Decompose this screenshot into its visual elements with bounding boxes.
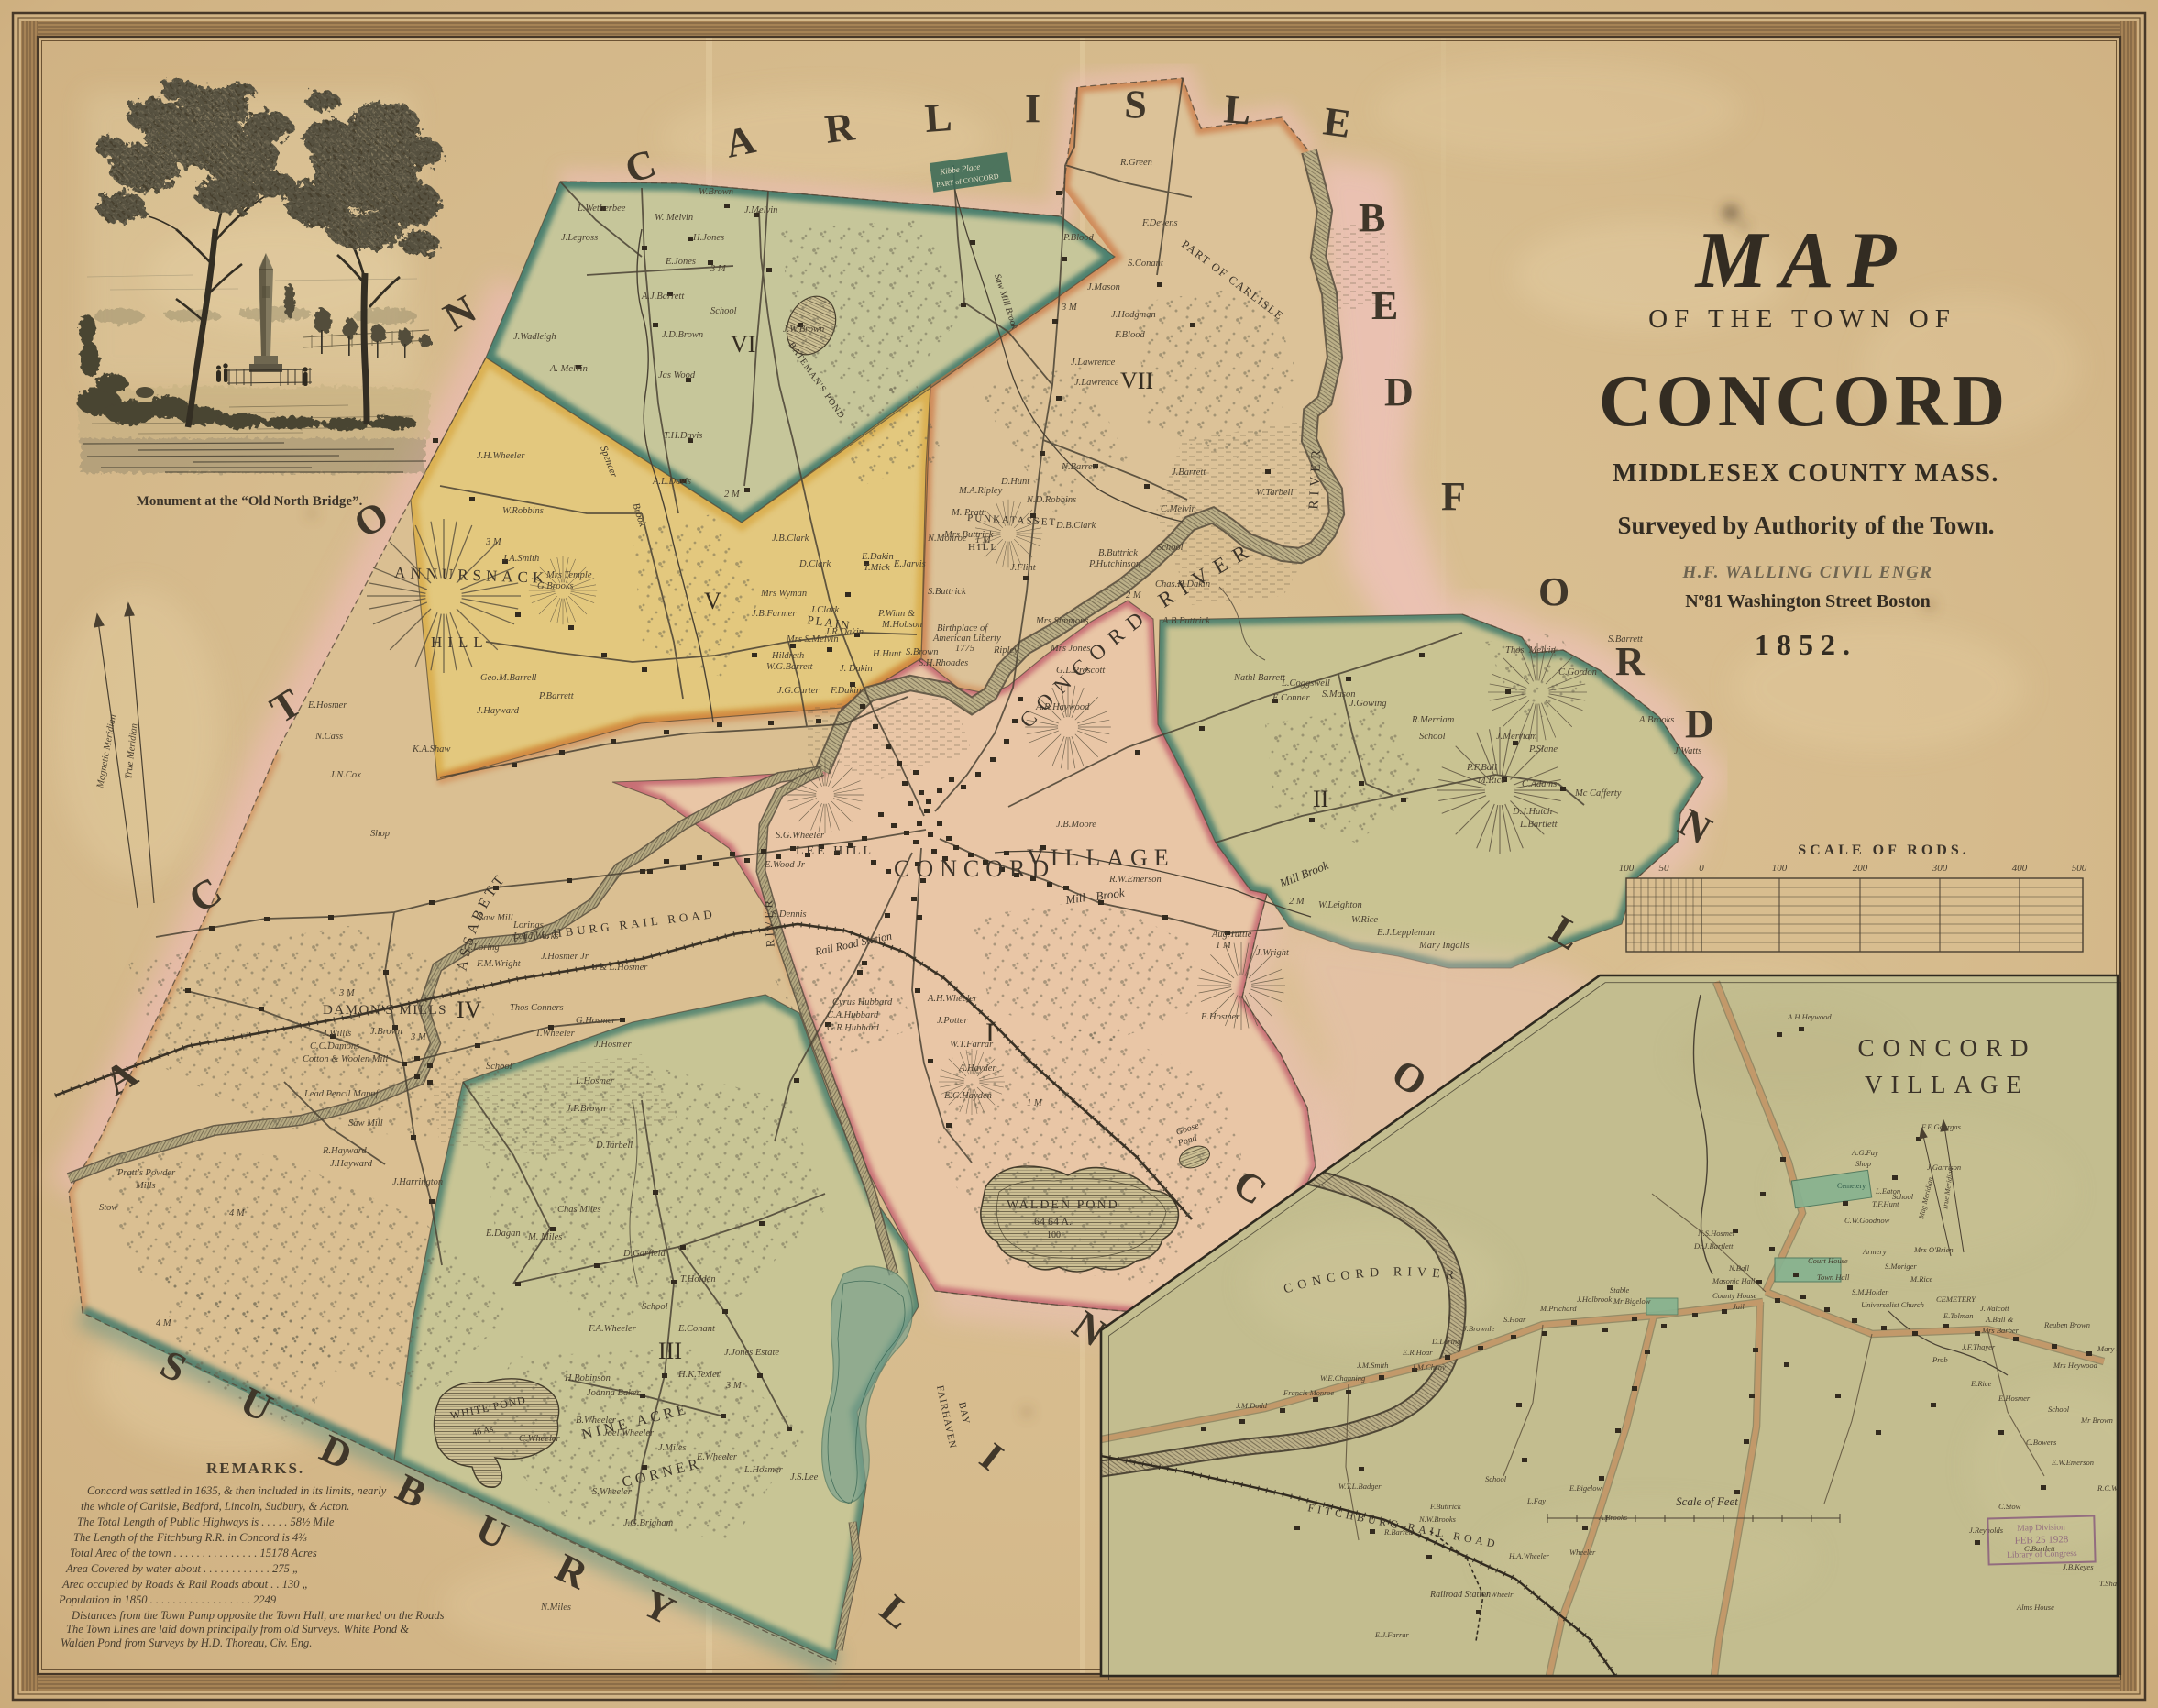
svg-text:W.T.Farrar: W.T.Farrar [950, 1040, 994, 1050]
svg-text:Mary Ingalls: Mary Ingalls [1418, 941, 1470, 951]
svg-text:S.G.Wheeler: S.G.Wheeler [776, 831, 825, 841]
svg-text:J.Barrett: J.Barrett [1172, 468, 1206, 478]
svg-text:L.Hosmer: L.Hosmer [743, 1465, 784, 1475]
svg-text:F.Buttrick: F.Buttrick [1429, 1502, 1461, 1511]
svg-text:S.Wheeler: S.Wheeler [592, 1487, 633, 1497]
svg-text:HILL: HILL [431, 634, 489, 651]
svg-text:J.Gowing: J.Gowing [1349, 699, 1387, 709]
svg-text:Mr Bigelow: Mr Bigelow [1613, 1296, 1651, 1306]
svg-text:A.Hayden: A.Hayden [958, 1063, 997, 1074]
svg-text:E.W.Emerson: E.W.Emerson [2051, 1458, 2094, 1467]
svg-text:C.Adams: C.Adams [1522, 779, 1557, 789]
svg-text:Francis Monroe: Francis Monroe [1283, 1388, 1334, 1397]
svg-text:J.Harrington: J.Harrington [392, 1177, 443, 1187]
svg-text:Concord was settled in 1635, &: Concord was settled in 1635, & then incl… [87, 1484, 387, 1497]
svg-text:G.L.Prescott: G.L.Prescott [1056, 666, 1106, 676]
svg-text:A.Brooks: A.Brooks [1598, 1513, 1628, 1522]
svg-text:Total Area of the town . . . .: Total Area of the town . . . . . . . . .… [70, 1547, 317, 1559]
svg-text:W.Leighton: W.Leighton [1318, 900, 1362, 910]
svg-text:Cemetery: Cemetery [1837, 1182, 1866, 1190]
svg-text:Joel Wheeler: Joel Wheeler [603, 1428, 655, 1438]
svg-text:L: L [923, 94, 953, 141]
svg-text:LEE HILL: LEE HILL [796, 844, 874, 858]
svg-text:C.W.Goodnow: C.W.Goodnow [1844, 1216, 1890, 1225]
svg-text:S.Brown: S.Brown [906, 647, 939, 657]
svg-text:J.Flint: J.Flint [1010, 563, 1037, 573]
svg-text:300: 300 [1932, 863, 1948, 874]
svg-text:Scale of Feet: Scale of Feet [1676, 1494, 1738, 1508]
svg-text:J.Clark: J.Clark [810, 605, 840, 615]
svg-text:S.Dennis: S.Dennis [772, 909, 807, 920]
svg-text:K.A.Shaw: K.A.Shaw [412, 744, 450, 755]
svg-text:S.Barrett: S.Barrett [1608, 634, 1644, 645]
svg-text:A.Ball &: A.Ball & [1985, 1315, 2014, 1324]
svg-text:J. Dakin: J. Dakin [840, 664, 873, 674]
svg-text:J.Potter: J.Potter [937, 1016, 968, 1026]
svg-text:Mrs Simmons: Mrs Simmons [1035, 616, 1088, 626]
svg-text:J.Melvin: J.Melvin [744, 205, 777, 215]
svg-text:H.Hunt: H.Hunt [872, 649, 902, 659]
svg-text:3 M: 3 M [710, 264, 727, 274]
svg-text:A.Brooks: A.Brooks [1638, 715, 1674, 725]
svg-text:E.Hosmer: E.Hosmer [1200, 1012, 1240, 1022]
svg-text:E.Wheeler: E.Wheeler [696, 1452, 738, 1462]
svg-text:Joanna Baker: Joanna Baker [587, 1388, 642, 1398]
svg-text:S.Conant: S.Conant [1128, 259, 1164, 269]
svg-text:S.Moriger: S.Moriger [1885, 1262, 1917, 1271]
svg-text:F.A.Wheeler: F.A.Wheeler [588, 1324, 637, 1334]
svg-text:B.Wheeler: B.Wheeler [576, 1416, 617, 1426]
svg-text:D: D [1685, 701, 1714, 746]
svg-text:Mrs Jones: Mrs Jones [1050, 644, 1090, 654]
svg-text:The Total Length of Public Hig: The Total Length of Public Highways is .… [77, 1515, 335, 1528]
svg-text:Dr.J.Bartlett: Dr.J.Bartlett [1693, 1241, 1734, 1251]
svg-text:J.P.Brown: J.P.Brown [567, 1104, 606, 1114]
svg-text:H.A.Wheeler: H.A.Wheeler [1508, 1551, 1550, 1560]
svg-text:J.Hayward: J.Hayward [330, 1159, 373, 1169]
svg-text:C.A.Hubbard: C.A.Hubbard [827, 1010, 879, 1020]
svg-text:J.F.Thayer: J.F.Thayer [1962, 1342, 1996, 1351]
svg-text:MIDDLESEX COUNTY MASS.: MIDDLESEX COUNTY MASS. [1613, 459, 1999, 488]
svg-text:C.Wheeler: C.Wheeler [519, 1434, 561, 1444]
svg-text:H.F. WALLING CIVIL ENG̲R: H.F. WALLING CIVIL ENG̲R [1682, 563, 1933, 582]
svg-text:SCALE OF RODS.: SCALE OF RODS. [1798, 843, 1969, 858]
svg-text:J.Brownle: J.Brownle [1463, 1324, 1495, 1333]
svg-text:D.Garfield: D.Garfield [622, 1249, 666, 1259]
svg-text:P.Winn &: P.Winn & [877, 609, 916, 619]
svg-text:P.Slane: P.Slane [1528, 744, 1558, 755]
svg-text:RIVER: RIVER [1306, 446, 1324, 511]
svg-text:III: III [658, 1338, 682, 1364]
svg-text:Aug.Tuttle: Aug.Tuttle [1211, 930, 1252, 940]
svg-text:4 M: 4 M [229, 1208, 246, 1218]
svg-text:T.Holden: T.Holden [680, 1274, 716, 1284]
svg-text:J.Hayward: J.Hayward [477, 706, 520, 716]
svg-text:D.Loring: D.Loring [1431, 1337, 1460, 1346]
svg-text:J.B.Moore: J.B.Moore [1056, 820, 1096, 830]
svg-text:2 M: 2 M [1289, 897, 1305, 907]
svg-text:Library of Congress: Library of Congress [2007, 1548, 2077, 1560]
svg-text:100: 100 [1047, 1230, 1061, 1240]
svg-text:J.Wright: J.Wright [1256, 948, 1290, 958]
svg-text:C.C.Damons: C.C.Damons [310, 1041, 359, 1052]
svg-text:Mrs Heywood: Mrs Heywood [2053, 1361, 2098, 1370]
svg-text:Thos Conners: Thos Conners [510, 1003, 564, 1013]
svg-text:CONCORD: CONCORD [1599, 361, 2009, 442]
svg-text:J.M.Smith: J.M.Smith [1357, 1361, 1388, 1370]
svg-text:Stow: Stow [99, 1203, 117, 1213]
svg-text:Surveyed by Authority of the T: Surveyed by Authority of the Town. [1617, 512, 1994, 539]
svg-text:F.M.Wright: F.M.Wright [476, 959, 522, 969]
svg-text:1 M: 1 M [1027, 1098, 1043, 1108]
svg-text:Saw Mill: Saw Mill [479, 913, 513, 923]
svg-text:J.B.Clark: J.B.Clark [772, 534, 809, 544]
svg-text:Shop: Shop [370, 829, 390, 839]
svg-text:J.Miles: J.Miles [658, 1443, 687, 1453]
svg-text:J.A.Smith: J.A.Smith [502, 554, 539, 564]
svg-text:R: R [1615, 639, 1646, 684]
svg-text:P.F.Ball: P.F.Ball [1466, 763, 1497, 773]
svg-text:Alms House: Alms House [2016, 1603, 2054, 1612]
svg-text:C.Gordon: C.Gordon [1558, 667, 1597, 678]
svg-text:S.M.Holden: S.M.Holden [1852, 1287, 1889, 1296]
svg-text:Reuben Brown: Reuben Brown [2043, 1320, 2090, 1329]
svg-text:Railroad Station: Railroad Station [1429, 1590, 1491, 1600]
svg-text:MAP: MAP [1694, 216, 1910, 305]
svg-text:FEB 25 1928: FEB 25 1928 [2014, 1534, 2068, 1547]
svg-text:J.B.Farmer: J.B.Farmer [752, 609, 797, 619]
svg-text:3 M: 3 M [410, 1032, 427, 1042]
svg-text:I: I [1025, 86, 1040, 131]
svg-text:Map Division: Map Division [2017, 1523, 2065, 1533]
svg-text:J.Garrison: J.Garrison [1927, 1163, 1961, 1172]
svg-text:L: L [1222, 86, 1253, 133]
svg-text:100: 100 [1772, 863, 1788, 874]
svg-text:E.Dakin: E.Dakin [861, 552, 894, 562]
svg-text:E.Hosmer: E.Hosmer [1998, 1394, 2031, 1403]
svg-text:School: School [710, 306, 737, 316]
svg-text:500: 500 [2072, 863, 2087, 874]
svg-text:Mrs Barber: Mrs Barber [1981, 1326, 2020, 1335]
svg-text:F.Dakin: F.Dakin [830, 686, 861, 696]
svg-text:C.Stow: C.Stow [1998, 1502, 2021, 1511]
svg-text:W.E.Channing: W.E.Channing [1320, 1373, 1365, 1383]
svg-text:W.Robbins: W.Robbins [502, 506, 544, 516]
svg-text:CEMETERY: CEMETERY [1936, 1295, 1976, 1304]
svg-text:E.J.Farrar: E.J.Farrar [1374, 1630, 1410, 1639]
svg-text:Nathl Barrett: Nathl Barrett [1233, 673, 1286, 683]
svg-text:Population in 1850 . . . . . .: Population in 1850 . . . . . . . . . . .… [58, 1593, 277, 1606]
svg-text:Mrs Temple: Mrs Temple [545, 570, 592, 580]
svg-text:J.D.Brown: J.D.Brown [662, 330, 703, 340]
svg-text:W. Melvin: W. Melvin [655, 213, 693, 223]
svg-text:G.Brooks: G.Brooks [537, 581, 574, 591]
svg-text:WALDEN POND: WALDEN POND [1007, 1198, 1119, 1212]
svg-text:Monument at the “Old North Bri: Monument at the “Old North Bridge”. [137, 494, 363, 509]
svg-text:E: E [1371, 283, 1398, 328]
svg-text:Mr Brown: Mr Brown [2080, 1416, 2113, 1425]
svg-text:G.Hosmer: G.Hosmer [576, 1016, 616, 1026]
svg-text:Stable: Stable [1610, 1285, 1629, 1295]
svg-text:T.Wheeler: T.Wheeler [535, 1029, 576, 1039]
svg-text:Mc Cafferty: Mc Cafferty [1574, 788, 1622, 799]
svg-text:W.G.Barrett: W.G.Barrett [766, 662, 814, 672]
svg-text:Mrs Wyman: Mrs Wyman [760, 589, 807, 599]
svg-text:J.Brown: J.Brown [370, 1027, 402, 1037]
svg-text:J.Walcott: J.Walcott [1980, 1304, 2009, 1313]
svg-text:J.Willis: J.Willis [323, 1029, 351, 1039]
svg-text:E.Tolman: E.Tolman [1943, 1311, 1974, 1320]
svg-text:E.Jones: E.Jones [665, 257, 696, 267]
svg-text:R.Green: R.Green [1119, 158, 1152, 168]
svg-text:J.Legross: J.Legross [561, 233, 598, 243]
svg-text:F: F [1441, 474, 1466, 519]
svg-text:S.Buttrick: S.Buttrick [928, 587, 966, 597]
svg-text:A.R.Haywood: A.R.Haywood [1035, 702, 1090, 712]
svg-text:M.Rice: M.Rice [1910, 1274, 1933, 1284]
svg-text:D.Hunt: D.Hunt [1000, 477, 1030, 487]
svg-text:P.Hutchinson: P.Hutchinson [1088, 559, 1140, 569]
svg-text:E.Hosmer: E.Hosmer [307, 700, 347, 711]
svg-text:E.Jarvis: E.Jarvis [893, 559, 926, 569]
svg-text:M.Hobson: M.Hobson [881, 620, 922, 630]
svg-text:School: School [1157, 543, 1184, 553]
svg-text:V: V [704, 588, 721, 614]
svg-text:School: School [1892, 1192, 1914, 1201]
svg-text:J.W.Brown: J.W.Brown [783, 325, 824, 335]
svg-text:M. Miles: M. Miles [527, 1232, 562, 1242]
svg-text:Area Covered by water about .: Area Covered by water about . . . . . . … [65, 1562, 299, 1575]
svg-text:A. Melvin: A. Melvin [549, 364, 588, 374]
svg-text:Hildreth: Hildreth [771, 651, 804, 661]
svg-text:2 M: 2 M [1126, 590, 1142, 601]
svg-text:J.M.Dodd: J.M.Dodd [1236, 1401, 1268, 1410]
svg-text:E.Bigelow: E.Bigelow [1569, 1483, 1602, 1493]
svg-text:400: 400 [2012, 863, 2028, 874]
svg-text:1775: 1775 [955, 644, 974, 654]
svg-text:L.Hosmer: L.Hosmer [575, 1076, 615, 1086]
svg-text:P.Blood: P.Blood [1062, 233, 1095, 243]
svg-text:J.Jones Estate: J.Jones Estate [724, 1348, 779, 1358]
svg-text:County House: County House [1712, 1291, 1757, 1300]
svg-text:N.Barrett: N.Barrett [1061, 462, 1099, 472]
svg-text:D.J.Hatch: D.J.Hatch [1512, 807, 1552, 817]
svg-text:School: School [1485, 1474, 1507, 1483]
svg-text:Nº81 Washington Street Boston: Nº81 Washington Street Boston [1685, 591, 1931, 612]
svg-text:1 M: 1 M [1216, 941, 1232, 951]
svg-text:2 M: 2 M [724, 490, 741, 500]
svg-text:64 64 A.: 64 64 A. [1034, 1215, 1072, 1228]
svg-text:1852.: 1852. [1755, 628, 1857, 661]
svg-text:J.Lawrence: J.Lawrence [1071, 358, 1116, 368]
svg-text:M.A.Ripley: M.A.Ripley [958, 486, 1003, 496]
svg-text:the whole of Carlisle, Bedford: the whole of Carlisle, Bedford, Lincoln,… [81, 1500, 349, 1513]
svg-text:T.Mick: T.Mick [864, 563, 890, 573]
svg-text:N.Ball: N.Ball [1728, 1263, 1750, 1273]
svg-text:E.R.Hoar: E.R.Hoar [1402, 1348, 1433, 1357]
svg-text:Thos. Melvin: Thos. Melvin [1505, 645, 1556, 656]
svg-text:Area occupied by Roads & Rail: Area occupied by Roads & Rail Roads abou… [61, 1578, 309, 1591]
svg-text:F.Blood: F.Blood [1114, 330, 1146, 340]
svg-text:A.L.Davis: A.L.Davis [652, 477, 691, 487]
svg-text:S: S [1124, 82, 1148, 127]
svg-text:J.Reynolds: J.Reynolds [1969, 1526, 2004, 1535]
svg-text:A.B.Buttrick: A.B.Buttrick [1162, 616, 1210, 626]
svg-text:M.Prichard: M.Prichard [1539, 1304, 1577, 1313]
svg-text:S & L.Hosmer: S & L.Hosmer [592, 963, 648, 973]
svg-text:The Town Lines are laid down p: The Town Lines are laid down principally… [66, 1623, 409, 1636]
svg-text:E.Dagan: E.Dagan [485, 1229, 521, 1239]
svg-text:4 M: 4 M [156, 1318, 172, 1328]
svg-text:S.Hoar: S.Hoar [1503, 1315, 1526, 1324]
svg-text:Lorings: Lorings [512, 920, 544, 931]
svg-text:The Length of the Fitchburg R.: The Length of the Fitchburg R.R. in Conc… [73, 1531, 307, 1544]
svg-text:Shop: Shop [1855, 1159, 1871, 1168]
svg-text:E.Conner: E.Conner [1272, 693, 1310, 703]
svg-text:Walden Pond from Surveys by H.: Walden Pond from Surveys by H.D. Thoreau… [61, 1636, 312, 1649]
svg-text:D.B.Clark: D.B.Clark [1055, 521, 1096, 531]
svg-text:IV: IV [457, 997, 482, 1023]
svg-text:N.D.Robbins: N.D.Robbins [1026, 495, 1076, 505]
svg-text:J.S.Lee: J.S.Lee [790, 1472, 819, 1482]
svg-text:A.G.Fay: A.G.Fay [1851, 1148, 1878, 1157]
svg-text:Mrs O'Brien: Mrs O'Brien [1913, 1245, 1954, 1254]
svg-text:Ripley: Ripley [993, 645, 1018, 656]
svg-text:J.Wadleigh: J.Wadleigh [513, 332, 556, 342]
svg-text:Chas.H.Dakin: Chas.H.Dakin [1155, 579, 1210, 590]
svg-text:M. Pratt: M. Pratt [951, 508, 985, 518]
svg-text:Masonic Hall: Masonic Hall [1712, 1276, 1756, 1285]
svg-text:C.Bowers: C.Bowers [2026, 1438, 2057, 1447]
svg-text:J.G.Carter: J.G.Carter [777, 686, 820, 696]
svg-text:Saw Mill: Saw Mill [348, 1118, 383, 1129]
svg-text:G.Loring: G.Loring [464, 942, 500, 953]
svg-text:F.Devens: F.Devens [1141, 218, 1178, 228]
svg-text:A.H.Wheeler: A.H.Wheeler [927, 994, 978, 1004]
svg-text:L.Bartlett: L.Bartlett [1519, 820, 1558, 830]
svg-text:E.Conant: E.Conant [677, 1324, 716, 1334]
svg-text:OF THE TOWN OF: OF THE TOWN OF [1648, 304, 1956, 334]
svg-text:REMARKS.: REMARKS. [206, 1460, 304, 1477]
svg-text:P.Barrett: P.Barrett [538, 691, 575, 701]
svg-text:B.Buttrick: B.Buttrick [1098, 548, 1138, 558]
svg-text:J.M.Cheny: J.M.Cheny [1412, 1362, 1446, 1372]
svg-text:Wheeler: Wheeler [1569, 1548, 1596, 1557]
svg-text:J.Merriam: J.Merriam [1496, 732, 1537, 742]
svg-text:J.Hosmer Jr: J.Hosmer Jr [541, 952, 589, 962]
svg-text:VI: VI [731, 331, 755, 358]
svg-text:School: School [2048, 1405, 2070, 1414]
svg-text:A.J.Barrett: A.J.Barrett [641, 292, 685, 302]
svg-text:50: 50 [1659, 863, 1670, 874]
svg-text:RIVER: RIVER [762, 898, 777, 948]
svg-text:R.W.Emerson: R.W.Emerson [1108, 875, 1162, 885]
svg-text:E.G.Hayden: E.G.Hayden [943, 1091, 992, 1101]
svg-text:Prob: Prob [1932, 1355, 1948, 1364]
svg-text:J.Hodgman: J.Hodgman [1111, 310, 1156, 320]
svg-text:3 M: 3 M [485, 537, 502, 547]
svg-text:D.Tarbell: D.Tarbell [595, 1141, 633, 1151]
svg-text:Chas Miles: Chas Miles [557, 1205, 601, 1215]
svg-text:W.Brown: W.Brown [699, 187, 733, 197]
svg-text:D.Clark: D.Clark [798, 559, 831, 569]
svg-text:J.G.Brigham: J.G.Brigham [623, 1518, 674, 1528]
svg-text:T.H.Davis: T.H.Davis [664, 431, 702, 441]
svg-text:Armery: Armery [1862, 1247, 1887, 1256]
svg-text:E.Wood Jr: E.Wood Jr [764, 860, 806, 870]
svg-text:School: School [642, 1302, 668, 1312]
svg-text:H.K.Texier: H.K.Texier [677, 1370, 721, 1380]
svg-text:N.W.Brooks: N.W.Brooks [1418, 1515, 1457, 1524]
svg-text:L.Coggswell: L.Coggswell [1281, 678, 1330, 689]
svg-text:H.Jones: H.Jones [692, 233, 724, 243]
svg-text:Pratt's Powder: Pratt's Powder [116, 1168, 176, 1178]
svg-text:O: O [1538, 569, 1569, 614]
svg-text:D: D [1384, 369, 1414, 414]
svg-text:Town Hall: Town Hall [1817, 1273, 1850, 1282]
svg-text:Court House: Court House [1808, 1256, 1848, 1265]
svg-text:Mill: Mill [1063, 890, 1086, 907]
svg-text:Birthplace of: Birthplace of [937, 623, 989, 634]
svg-text:Jail: Jail [1733, 1302, 1745, 1311]
svg-text:N.Cass: N.Cass [314, 732, 343, 742]
svg-text:E.J.Leppleman: E.J.Leppleman [1376, 928, 1435, 938]
svg-text:J.Lawrence: J.Lawrence [1074, 378, 1119, 388]
svg-text:School: School [486, 1062, 512, 1072]
svg-text:Jas Wood: Jas Wood [658, 370, 696, 380]
svg-text:0: 0 [1699, 863, 1704, 874]
svg-text:W.Rice: W.Rice [1351, 915, 1378, 925]
svg-text:R.Merriam: R.Merriam [1411, 715, 1455, 725]
svg-text:CONCORD: CONCORD [1857, 1034, 2036, 1062]
svg-text:M.Rice: M.Rice [1477, 776, 1505, 786]
svg-text:100: 100 [1619, 863, 1635, 874]
svg-text:E.Rice: E.Rice [1970, 1379, 1992, 1388]
svg-text:3 M: 3 M [1061, 303, 1078, 313]
svg-text:VILLAGE: VILLAGE [1865, 1071, 2030, 1098]
svg-text:S.H.Rhoades: S.H.Rhoades [919, 658, 968, 668]
svg-text:L.Wetherbee: L.Wetherbee [577, 204, 626, 214]
svg-text:A.H.Heywood: A.H.Heywood [1787, 1012, 1832, 1021]
svg-text:Cyrus Hubbard: Cyrus Hubbard [832, 997, 893, 1008]
svg-text:R.Hayward: R.Hayward [322, 1146, 367, 1156]
svg-text:II: II [1313, 786, 1328, 812]
svg-text:J.Hosmer: J.Hosmer [594, 1040, 632, 1050]
svg-text:Cotton & Woolen Mill: Cotton & Woolen Mill [303, 1054, 388, 1064]
svg-text:J.N.Cox: J.N.Cox [330, 770, 361, 780]
svg-text:VILLAGE: VILLAGE [1027, 844, 1175, 871]
svg-text:Universalist Church: Universalist Church [1861, 1300, 1924, 1309]
svg-text:Distances from the Town Pump o: Distances from the Town Pump opposite th… [71, 1609, 445, 1622]
svg-text:3 M: 3 M [338, 988, 356, 998]
svg-text:N.S.Hosmer: N.S.Hosmer [1697, 1229, 1736, 1238]
svg-text:W.T.L.Badger: W.T.L.Badger [1338, 1482, 1382, 1491]
svg-text:VII: VII [1120, 368, 1153, 394]
svg-text:J.H.Wheeler: J.H.Wheeler [477, 451, 525, 461]
svg-text:J.Watts: J.Watts [1674, 746, 1701, 756]
svg-text:200: 200 [1853, 863, 1868, 874]
svg-text:Lead Works: Lead Works [512, 931, 559, 942]
svg-text:Mills: Mills [135, 1181, 156, 1191]
svg-text:DAMON'S MILLS: DAMON'S MILLS [323, 1003, 447, 1018]
svg-text:American Liberty: American Liberty [932, 634, 1001, 644]
svg-text:L.Fay: L.Fay [1526, 1496, 1546, 1505]
svg-text:C.Melvin: C.Melvin [1161, 504, 1196, 514]
svg-text:J.Mason: J.Mason [1087, 282, 1120, 292]
svg-text:School: School [1419, 732, 1446, 742]
svg-text:W.Tarbell: W.Tarbell [1256, 488, 1293, 498]
svg-text:Lead Pencil Manuf: Lead Pencil Manuf [303, 1089, 380, 1099]
